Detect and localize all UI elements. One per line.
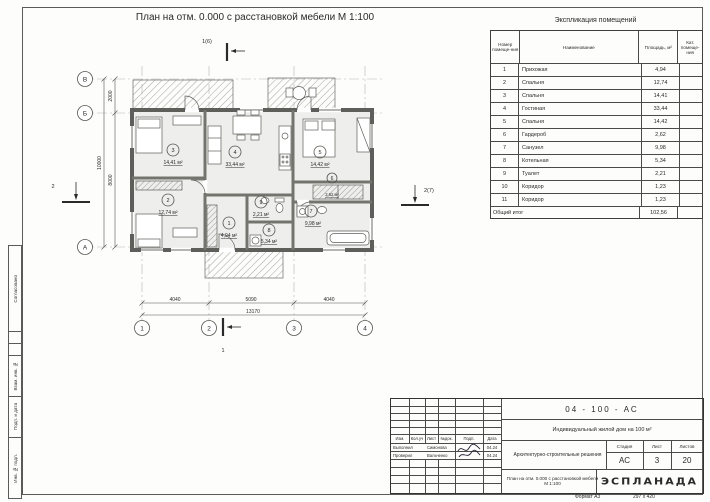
- axis-4: 4: [363, 326, 367, 333]
- total-area: 102,56: [640, 207, 678, 218]
- strip-label: Подп. и дата: [13, 403, 18, 430]
- cell-cat: [680, 77, 702, 89]
- room-number: 5: [318, 150, 321, 156]
- cell-name: Гостиная: [519, 103, 642, 115]
- signature-mark: [456, 442, 482, 460]
- page-title: План на отм. 0.000 с расстановкой мебели…: [90, 12, 420, 23]
- table-row: 1 Прихожая 4,94: [491, 64, 702, 77]
- table-row: 7 Санузел 9,98: [491, 142, 702, 155]
- cell-num: 9: [491, 168, 519, 180]
- table-row: 10 Коридор 1,23: [491, 181, 702, 194]
- title-block: Изм. Кол.уч Лист №док. Подп. Дата Выполн…: [390, 398, 704, 494]
- cell-num: 5: [491, 116, 519, 128]
- dim-bottom-total: 13170: [246, 309, 260, 315]
- cell-name: Прихожая: [519, 64, 642, 76]
- section-right-label: 2(7): [424, 188, 434, 194]
- strip-box-inv: Инв. № подл.: [8, 438, 22, 499]
- sign-role: Проверил: [391, 451, 427, 459]
- cell-area: 1,23: [642, 181, 680, 193]
- exp-table-header: Номер помеще-ния Наименование Площадь, м…: [491, 31, 702, 64]
- room-number: 4: [233, 150, 236, 156]
- doc-code: 04 - 100 - АС: [501, 399, 703, 419]
- room-number: 7: [309, 209, 312, 215]
- col-izm: Изм.: [391, 434, 409, 443]
- list-value: 3: [643, 452, 671, 469]
- cell-cat: [680, 142, 702, 154]
- cell-cat: [680, 168, 702, 180]
- table-row: 8 Котельная 5,34: [491, 155, 702, 168]
- col-koluch: Кол.уч: [409, 434, 425, 443]
- sign-role: Выполнил: [391, 443, 427, 451]
- cell-cat: [680, 181, 702, 193]
- room-area: 14,41 м²: [163, 160, 182, 166]
- table-row: 3 Спальня 14,41: [491, 90, 702, 103]
- object-name: Индивидуальный жилой дом на 100 м²: [501, 419, 703, 440]
- exp-table: Номер помеще-ния Наименование Площадь, м…: [490, 30, 703, 219]
- cell-num: 6: [491, 129, 519, 141]
- col-ndok: №док.: [438, 434, 455, 443]
- cell-num: 8: [491, 155, 519, 167]
- cell-name: Спальня: [519, 90, 642, 102]
- table-row: 2 Спальня 12,74: [491, 77, 702, 90]
- room-number: 6: [331, 176, 334, 182]
- room-number: 8: [267, 228, 270, 234]
- sign-date: 04.24: [483, 443, 501, 451]
- doc-type: Архитектурно-строительные решения: [501, 440, 614, 469]
- axis-v: В: [83, 77, 87, 84]
- cell-area: 4,94: [642, 64, 680, 76]
- cell-area: 2,62: [642, 129, 680, 141]
- cell-cat: [680, 116, 702, 128]
- axis-a: А: [83, 245, 88, 252]
- cell-area: 14,41: [642, 90, 680, 102]
- room-area: 5,34 м²: [261, 239, 278, 245]
- table-row: 6 Гардероб 2,62: [491, 129, 702, 142]
- room-area: 12,74 м²: [158, 210, 177, 216]
- list-label: Лист: [643, 440, 671, 452]
- section-top-label: 1(6): [202, 39, 212, 45]
- sheet-name: План на отм. 0.000 с расстановкой мебели…: [501, 469, 604, 493]
- cell-area: 12,74: [642, 77, 680, 89]
- col-list: Лист: [425, 434, 438, 443]
- dim-left-2: 8000: [108, 174, 114, 185]
- exp-table-title: Экспликация помещений: [490, 17, 701, 24]
- total-label: Общий итог: [491, 207, 640, 218]
- cell-area: 5,34: [642, 155, 680, 167]
- cell-name: Санузел: [519, 142, 642, 154]
- room-area: 33,44 м²: [225, 162, 244, 168]
- room-number: 3: [171, 148, 174, 154]
- strip-label: Согласовано: [13, 275, 18, 303]
- section-bottom-label: 1: [221, 348, 224, 354]
- table-row: 9 Туалет 2,21: [491, 168, 702, 181]
- table-row: 4 Гостиная 33,44: [491, 103, 702, 116]
- format-size: 297 х 420: [633, 494, 655, 500]
- table-total-row: Общий итог 102,56: [491, 207, 702, 218]
- cell-num: 3: [491, 90, 519, 102]
- room-number: 2: [166, 198, 169, 204]
- room-area: 2,62 м²: [325, 192, 339, 197]
- cell-num: 7: [491, 142, 519, 154]
- cell-cat: [680, 90, 702, 102]
- cell-num: 4: [491, 103, 519, 115]
- org-logo: ЭСПЛАНАДА: [596, 471, 703, 491]
- col-area: Площадь, м²: [639, 31, 678, 63]
- cell-num: 10: [491, 181, 519, 193]
- cell-cat: [680, 155, 702, 167]
- room-area: 4,94 м²: [221, 233, 238, 239]
- cell-cat: [680, 129, 702, 141]
- stage-value: АС: [606, 452, 643, 469]
- table-row: 5 Спальня 14,42: [491, 116, 702, 129]
- cell-area: 2,21: [642, 168, 680, 180]
- room-area: 2,21 м²: [253, 212, 270, 218]
- cell-cat: [680, 194, 702, 206]
- drawing-sheet: План на отм. 0.000 с расстановкой мебели…: [0, 0, 710, 502]
- cell-cat: [680, 64, 702, 76]
- total-cat: [678, 207, 700, 218]
- strip-label: Взам. инв. №: [13, 362, 18, 391]
- axis-3: 3: [292, 326, 296, 333]
- cell-area: 1,23: [642, 194, 680, 206]
- cell-area: 14,42: [642, 116, 680, 128]
- left-attribute-strip: Согласовано Взам. инв. № Подп. и дата Ин…: [8, 245, 22, 499]
- cell-area: 9,98: [642, 142, 680, 154]
- section-left-label: 2: [51, 184, 54, 190]
- strip-box-empty: [8, 344, 22, 356]
- floor-plan-drawing: 1 4,94 м² 2 12,74 м² 3 14,41 м² 4 33,44 …: [35, 30, 455, 365]
- room-number: 1: [227, 221, 230, 227]
- cell-num: 11: [491, 194, 519, 206]
- strip-box-empty: [8, 332, 22, 344]
- cell-name: Спальня: [519, 116, 642, 128]
- cell-num: 1: [491, 64, 519, 76]
- dim-bottom-2: 5090: [245, 297, 256, 303]
- cell-name: Гардероб: [519, 129, 642, 141]
- dim-left-1: 2000: [108, 90, 114, 101]
- col-data: Дата: [483, 434, 501, 443]
- axis-2: 2: [207, 326, 211, 333]
- dim-bottom-3: 4040: [323, 297, 334, 303]
- room-area: 14,42 м²: [310, 162, 329, 168]
- col-name: Наименование: [520, 31, 639, 63]
- col-cat: Кат. помеще-ния: [678, 31, 702, 63]
- cell-name: Котельная: [519, 155, 642, 167]
- sign-name: Симонова: [425, 443, 457, 451]
- col-num: Номер помеще-ния: [491, 31, 520, 63]
- cell-area: 33,44: [642, 103, 680, 115]
- room-area: 9,98 м²: [305, 221, 322, 227]
- axis-1: 1: [140, 326, 144, 333]
- dim-bottom-1: 4040: [169, 297, 180, 303]
- strip-label: Инв. № подл.: [13, 454, 18, 483]
- dim-left-total: 10000: [97, 156, 103, 170]
- sign-date: 04.24: [483, 451, 501, 459]
- format-label: Формат А3: [575, 494, 600, 500]
- cell-num: 2: [491, 77, 519, 89]
- cell-name: Коридор: [519, 194, 642, 206]
- table-row: 11 Коридор 1,23: [491, 194, 702, 207]
- strip-box-podp: Подп. и дата: [8, 397, 22, 438]
- lists-label: Листов: [671, 440, 703, 452]
- cell-name: Туалет: [519, 168, 642, 180]
- strip-box-soglasovano: Согласовано: [8, 245, 22, 332]
- sign-name: Вальченко: [425, 451, 457, 459]
- lists-value: 20: [671, 452, 703, 469]
- stage-label: Стадия: [606, 440, 643, 452]
- room-number: 9: [259, 200, 262, 206]
- strip-box-vzam: Взам. инв. №: [8, 356, 22, 397]
- cell-cat: [680, 103, 702, 115]
- cell-name: Коридор: [519, 181, 642, 193]
- cell-name: Спальня: [519, 77, 642, 89]
- axis-b: Б: [83, 111, 87, 118]
